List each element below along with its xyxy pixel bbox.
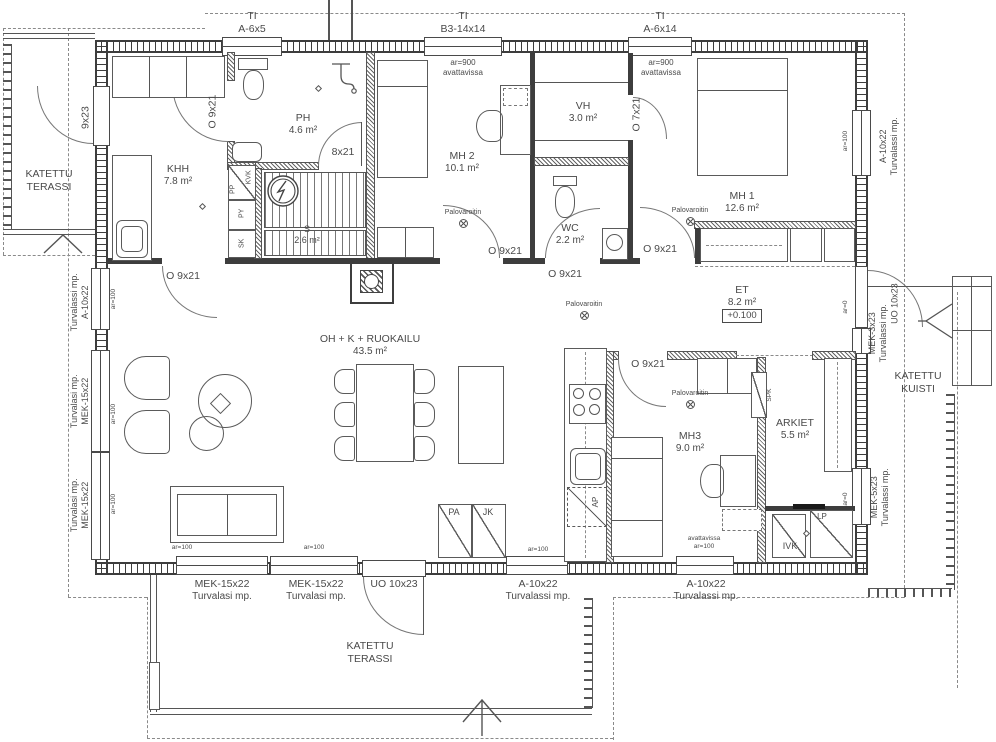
dining-table <box>356 364 414 462</box>
desk-dashed-box <box>503 88 528 106</box>
room-label-terassi-tl: KATETTU TERASSI <box>8 168 90 194</box>
eave-line <box>613 597 614 740</box>
note-ar900: ar=900avattavissa <box>424 58 502 78</box>
terrace-deck-edge <box>584 598 593 708</box>
level-mark: +0.100 <box>710 309 774 323</box>
wall-vh-wc <box>535 158 628 165</box>
dishwasher <box>567 487 607 527</box>
room-label-mh1: MH 112.6 m² <box>707 190 777 216</box>
smoke-detector-icon <box>686 217 695 226</box>
window-label-ti1: TIA-6x5 <box>222 10 282 36</box>
note-ar0: ar=0 <box>842 484 850 514</box>
window-mek15x22-bottom-1 <box>176 556 268 575</box>
arkiet-cabinet <box>824 358 852 472</box>
kuisti-steps-line <box>952 330 992 331</box>
desk <box>720 455 756 507</box>
eave-line <box>68 597 147 598</box>
shelf-line <box>535 140 628 141</box>
side-table <box>189 416 224 451</box>
cabinet-divider <box>149 56 150 98</box>
window-ti-b3-14x14 <box>424 37 502 56</box>
door-9x23-frame <box>93 86 110 146</box>
door-uo10x23-terrace-frame <box>362 560 426 577</box>
wall-ph-mh2 <box>367 53 374 262</box>
dining-chair <box>414 402 435 427</box>
window-label-a10x22-right: A-10x22Turvalassi mp. <box>878 101 901 191</box>
eave-line <box>613 597 904 598</box>
dining-chair <box>414 436 435 461</box>
wardrobe-slide-line <box>706 245 782 246</box>
dining-chair <box>334 402 355 427</box>
room-label-arkiet: ARKIET5.5 m² <box>760 417 830 443</box>
kitchen-sink-basin <box>575 453 601 480</box>
dresser-divider <box>405 227 406 258</box>
closet-label-sk: SK <box>239 233 248 253</box>
chimney-flue <box>351 0 353 40</box>
wc-sink-basin <box>606 234 623 251</box>
room-label-khh: KHH7.8 m² <box>143 163 213 189</box>
sauna-stove-icon <box>266 174 300 208</box>
eave-line <box>205 13 905 14</box>
wardrobe-divider <box>727 358 728 394</box>
wall-main-horizontal <box>225 258 440 264</box>
stove-burner <box>589 388 601 400</box>
note-ar100: ar=100 <box>110 397 118 431</box>
smoke-detector-label: Palovaroitin <box>435 209 491 218</box>
terrace-steps-arrow-icon <box>455 692 509 738</box>
window-label-mek15x22-left-2: Turvalasi mp.MEK-15x22 <box>69 457 92 553</box>
armchair <box>124 410 170 454</box>
closet-label-py: PY <box>239 203 248 223</box>
closet-label-pp: PP <box>230 179 239 199</box>
eave-line <box>147 738 613 739</box>
note-ar100: ar=100 <box>296 544 332 552</box>
armchair <box>124 356 170 400</box>
window-label-ti3: TIA-6x14 <box>624 10 696 36</box>
chimney-flue <box>328 0 330 40</box>
door-label-mh2: O 9x21 <box>475 245 535 258</box>
door-label-uo10x23-terrace: UO 10x23 <box>358 578 430 591</box>
dining-chair <box>334 369 355 394</box>
window-label-ti2: TIB3-14x14 <box>420 10 506 36</box>
eave-line <box>3 255 95 256</box>
stove-burner <box>573 404 585 416</box>
electrical-panel-spk <box>751 372 767 418</box>
et-opening-line <box>695 266 855 267</box>
door-label-mh3: O 9x21 <box>617 358 679 371</box>
kitchen-island <box>458 366 504 464</box>
eave-line <box>147 597 148 738</box>
eave-line <box>3 28 205 29</box>
door-label-wc: O 9x21 <box>537 268 593 281</box>
khh-sink-basin <box>121 226 143 252</box>
electrical-symbol <box>199 203 206 210</box>
window-label-a10x22-left: Turvalassi mp.A-10x22 <box>69 257 92 347</box>
window-mek15x22-left-1 <box>91 350 110 452</box>
arkiet-opening-line <box>736 355 813 356</box>
note-avattavissa-ar100: avattavissaar=100 <box>672 535 736 551</box>
room-label-kuisti: KATETTUKUISTI <box>878 370 958 396</box>
toilet-bowl <box>243 70 264 100</box>
door-label-uo10x23-kuisti: UO 10x23 <box>889 269 900 339</box>
cabinet-line <box>837 362 838 468</box>
room-label-terassi-b: KATETTUTERASSI <box>328 640 412 666</box>
smoke-detector-label: Palovaroitin <box>556 301 612 310</box>
desk-dashed-box <box>722 509 762 531</box>
bed-pillow-line <box>611 458 663 459</box>
room-label-mh3: MH39.0 m² <box>655 430 725 456</box>
window-mek15x22-left-2 <box>91 452 110 560</box>
window-label-mek15x22-b2: MEK-15x22Turvalasi mp. <box>270 578 362 604</box>
room-label-et: ET8.2 m² <box>710 284 774 310</box>
door-label-9x23: 9x23 <box>79 96 92 140</box>
stove-burner <box>589 404 600 415</box>
shower-icon <box>330 58 358 98</box>
window-a10x22-bottom-1 <box>506 556 568 575</box>
terrace-post <box>149 662 160 710</box>
note-ar100: ar=100 <box>842 124 850 158</box>
door-leaf <box>361 122 362 166</box>
window-mek15x22-bottom-2 <box>270 556 358 575</box>
bed-pillow-line <box>697 90 788 91</box>
label-ivk: IVK <box>777 541 803 552</box>
toilet-bowl <box>555 186 575 218</box>
room-label-ph: PH4.6 m² <box>268 112 338 138</box>
door-label-khh-ph: O 9x21 <box>206 88 219 136</box>
note-ar100: ar=100 <box>110 487 118 521</box>
room-label-wc: WC2.2 m² <box>538 222 602 248</box>
terrace-edge <box>150 708 592 715</box>
label-spk: SPK <box>766 383 774 407</box>
cabinet-divider <box>186 56 187 98</box>
bed-pillow-line <box>377 86 428 87</box>
room-label-sauna: S2.6 m² <box>282 224 332 247</box>
smoke-detector-label: Palovaroitin <box>662 390 718 399</box>
dining-chair <box>334 436 355 461</box>
wall-sauna-top <box>255 163 318 169</box>
door-label-sauna: 8x21 <box>322 146 364 159</box>
toilet-tank <box>238 58 268 70</box>
wardrobe <box>790 228 822 262</box>
shelf-line <box>535 82 628 83</box>
stove-burner <box>573 388 584 399</box>
fireplace-flue-pipe <box>364 274 379 289</box>
wall-khh-ph <box>228 53 234 80</box>
electrical-symbol <box>315 85 322 92</box>
room-label-mh2: MH 210.1 m² <box>427 150 497 176</box>
window-ti-a6x14 <box>628 37 692 56</box>
note-ar100: ar=100 <box>110 282 118 316</box>
wall-pocket-door <box>793 504 825 509</box>
floor-plan: KATETTU TERASSI <box>0 0 996 742</box>
window-label-mek15x22-b1: MEK-15x22Turvalasi mp. <box>176 578 268 604</box>
window-label-a10x22-b2: A-10x22Turvalassi mp. <box>662 578 750 604</box>
kuisti-steps-arrow-icon <box>918 300 954 342</box>
window-a10x22-right <box>852 110 871 176</box>
note-ar0: ar=0 <box>842 292 850 322</box>
note-ar900: ar=900avattavissa <box>622 58 700 78</box>
window-label-a10x22-b1: A-10x22Turvalassi mp. <box>494 578 582 604</box>
room-label-vh: VH3.0 m² <box>550 100 616 126</box>
window-label-mek3x23: MEK-3x23Turvalassi mp. <box>867 286 890 380</box>
terrace-deck-edge <box>3 44 12 230</box>
window-label-mek5x23: MEK-5x23Turvalassi mp. <box>869 450 892 544</box>
door-label-mh1: O 9x21 <box>630 243 690 256</box>
bed <box>377 60 428 178</box>
terrace-edge <box>3 33 95 39</box>
room-label-oh: OH + K + RUOKAILU43.5 m² <box>295 333 445 359</box>
chair <box>476 110 503 142</box>
door-label-vh: O 7x21 <box>630 91 643 139</box>
wall-main-horizontal <box>503 258 545 264</box>
note-ar100: ar=100 <box>164 544 200 552</box>
window-a10x22-left <box>91 268 110 330</box>
smoke-detector-icon <box>459 219 468 228</box>
label-ap: AP <box>591 490 601 514</box>
bed <box>697 58 788 176</box>
kuisti-deck-edge <box>868 588 952 597</box>
label-lp: LP <box>813 512 831 522</box>
door-label-khh-oh: O 9x21 <box>152 270 214 283</box>
closet-label-kvk: KVK <box>246 167 255 187</box>
smoke-detector-icon <box>686 400 695 409</box>
terrace-steps-arrow-icon <box>40 231 86 255</box>
label-pa: PA <box>442 507 466 518</box>
window-a10x22-bottom-2 <box>676 556 734 575</box>
smoke-detector-icon <box>580 311 589 320</box>
note-ar100: ar=100 <box>520 546 556 554</box>
sofa-cushion-divider <box>227 494 228 536</box>
label-jk: JK <box>476 507 500 518</box>
dining-chair <box>414 369 435 394</box>
washbasin <box>232 142 262 162</box>
bed-foot-line <box>611 520 663 521</box>
chair <box>700 464 724 498</box>
wardrobe <box>824 228 855 262</box>
kuisti-deck-edge <box>946 394 955 590</box>
toilet-tank <box>553 176 577 186</box>
window-label-mek15x22-left-1: Turvalasi mp.MEK-15x22 <box>69 353 92 449</box>
